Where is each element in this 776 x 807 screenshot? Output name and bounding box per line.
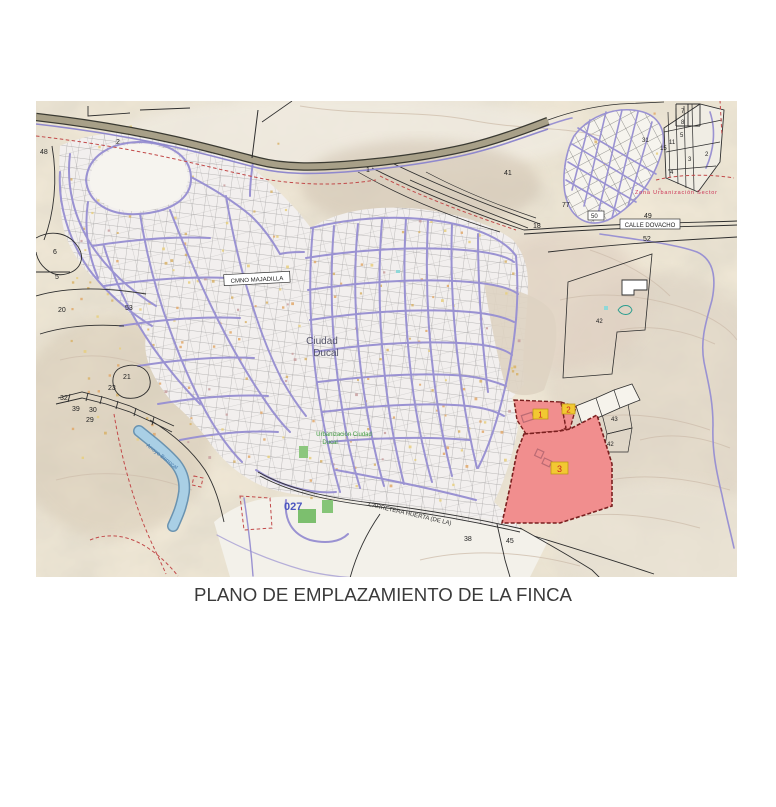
svg-text:49: 49 — [644, 213, 652, 220]
svg-text:77: 77 — [562, 202, 570, 209]
svg-text:23: 23 — [108, 385, 116, 392]
svg-text:31: 31 — [642, 138, 649, 144]
svg-text:5: 5 — [55, 274, 59, 281]
svg-text:Ducal: Ducal — [322, 440, 337, 446]
svg-text:1: 1 — [366, 167, 370, 174]
svg-text:43: 43 — [611, 417, 618, 423]
svg-text:027: 027 — [284, 501, 302, 513]
svg-text:2: 2 — [566, 406, 571, 415]
svg-text:38: 38 — [464, 536, 472, 543]
svg-text:42: 42 — [607, 442, 614, 448]
svg-text:11: 11 — [669, 140, 676, 146]
svg-text:Urbanización Ciudad: Urbanización Ciudad — [316, 432, 372, 438]
svg-text:30: 30 — [89, 407, 97, 414]
svg-text:Ducal: Ducal — [313, 348, 339, 359]
svg-text:6: 6 — [53, 249, 57, 256]
svg-text:15: 15 — [660, 146, 667, 152]
svg-text:Ciudad: Ciudad — [306, 336, 338, 347]
svg-text:41: 41 — [504, 170, 512, 177]
svg-text:32: 32 — [60, 395, 68, 402]
svg-text:Zona Urbanización Sector: Zona Urbanización Sector — [635, 190, 717, 196]
svg-text:1: 1 — [538, 411, 543, 420]
svg-text:18: 18 — [533, 223, 541, 230]
svg-text:45: 45 — [506, 538, 514, 545]
svg-text:50: 50 — [591, 214, 598, 220]
svg-text:39: 39 — [72, 406, 80, 413]
svg-text:2: 2 — [116, 139, 120, 146]
svg-text:PLANO DE EMPLAZAMIENTO DE LA F: PLANO DE EMPLAZAMIENTO DE LA FINCA — [194, 585, 572, 605]
svg-text:29: 29 — [86, 417, 94, 424]
svg-text:53: 53 — [125, 305, 133, 312]
svg-text:21: 21 — [123, 374, 131, 381]
svg-text:3: 3 — [557, 464, 562, 474]
svg-text:CALLE DOVACHO: CALLE DOVACHO — [625, 223, 676, 229]
svg-text:42: 42 — [596, 319, 603, 325]
svg-text:52: 52 — [643, 236, 651, 243]
svg-text:48: 48 — [40, 149, 48, 156]
svg-text:20: 20 — [58, 307, 66, 314]
